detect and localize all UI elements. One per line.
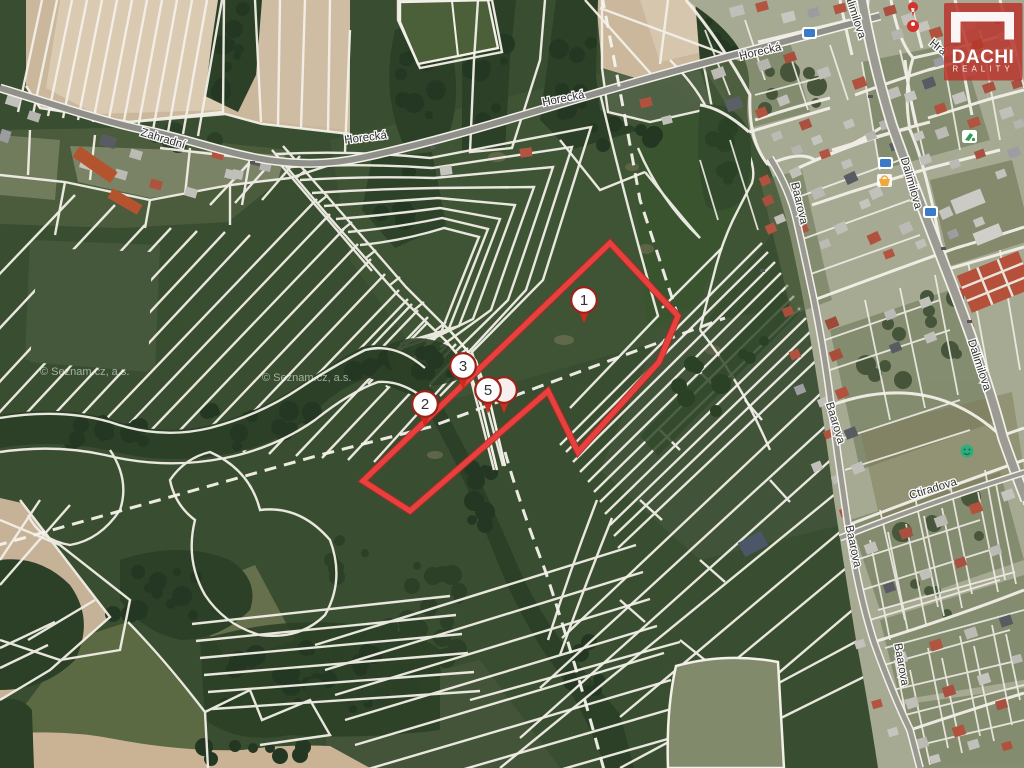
svg-text:REALITY: REALITY — [952, 65, 1013, 74]
svg-text:1: 1 — [580, 292, 588, 309]
svg-text:3: 3 — [459, 358, 467, 375]
svg-text:2: 2 — [421, 396, 429, 413]
svg-text:5: 5 — [484, 382, 492, 399]
svg-text:© Seznam.cz, a.s.: © Seznam.cz, a.s. — [262, 372, 351, 384]
svg-text:© Seznam.cz, a.s.: © Seznam.cz, a.s. — [40, 366, 129, 378]
